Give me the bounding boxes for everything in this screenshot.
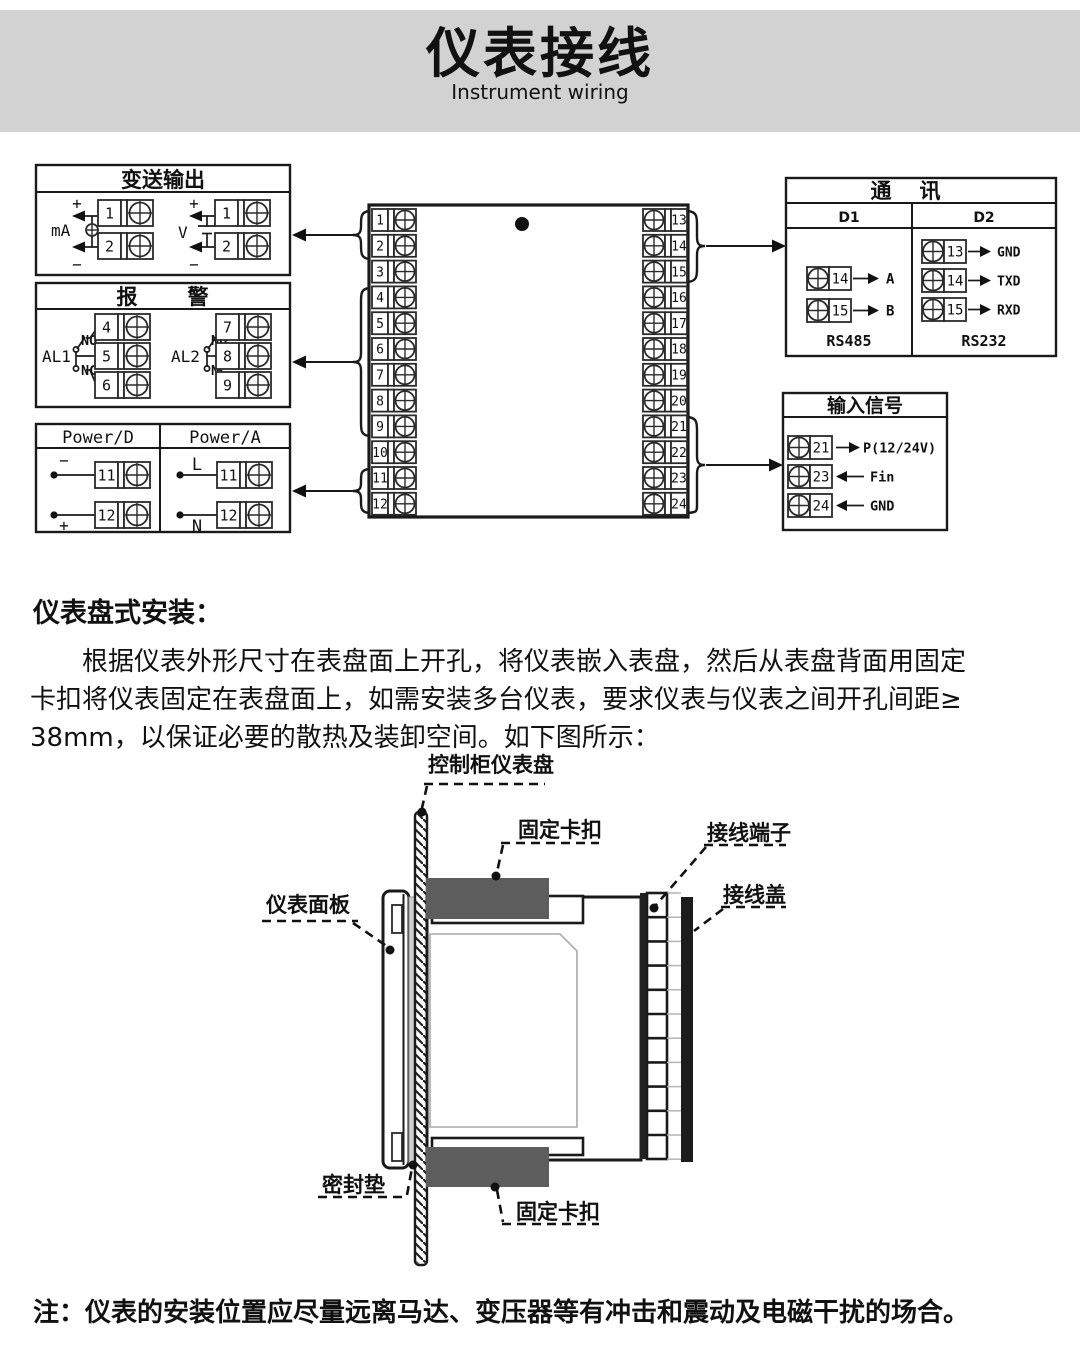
- terminal-number: 24: [671, 497, 687, 512]
- terminal-number: 2: [105, 237, 114, 255]
- gasket-label: 密封垫: [322, 1173, 385, 1197]
- terminal-number: 23: [671, 472, 687, 487]
- rs232-label: RS232: [961, 332, 1006, 350]
- terminal: 5: [372, 312, 416, 334]
- terminal: 4: [95, 314, 150, 340]
- terminal: 2: [372, 235, 416, 257]
- terminal-number: 2: [222, 237, 231, 255]
- terminal: 4: [372, 286, 416, 308]
- title-banner: 仪表接线 Instrument wiring: [0, 10, 1080, 132]
- front-panel-bezel: [383, 891, 409, 1168]
- terminal-number: 10: [372, 446, 388, 461]
- terminal-number: 4: [102, 318, 111, 336]
- page-subtitle: Instrument wiring: [0, 80, 1080, 104]
- terminal: 19: [643, 364, 687, 386]
- minus-sign: −: [189, 255, 199, 274]
- panel-mount-diagram: 控制柜仪表盘 固定卡扣 接线端子 接线盖 仪表面板 密封垫 固定卡扣: [0, 750, 1080, 1285]
- terminal: 18: [643, 338, 687, 360]
- wiring-cover-bar: [681, 897, 693, 1162]
- terminal: 8: [372, 390, 416, 412]
- v-label: V: [178, 223, 188, 242]
- al2-label: AL2: [171, 347, 200, 366]
- terminal: 14: [807, 267, 851, 290]
- alarm-title: 警: [187, 285, 209, 309]
- signal-label: RXD: [997, 304, 1021, 319]
- terminal: 6: [95, 372, 150, 398]
- terminal: 15: [643, 261, 687, 283]
- terminal-number: 8: [223, 347, 232, 365]
- terminal: 9: [216, 372, 271, 398]
- terminal: 11: [217, 462, 272, 488]
- cabinet-panel-label: 控制柜仪表盘: [428, 753, 554, 777]
- ma-label: mA: [51, 221, 71, 240]
- fixing-clip-bottom-label: 固定卡扣: [516, 1200, 600, 1224]
- terminal-number: 13: [671, 214, 687, 229]
- terminal-block-label: 接线端子: [707, 821, 791, 845]
- terminal: 20: [643, 390, 687, 412]
- terminal-number: 21: [671, 420, 687, 435]
- terminal: 9: [372, 415, 416, 437]
- terminal: 3: [372, 261, 416, 283]
- signal-label: A: [886, 272, 895, 288]
- terminal: 1: [215, 200, 270, 226]
- terminal-number: 15: [947, 303, 964, 319]
- terminal-number: 6: [376, 343, 384, 358]
- terminal-number: 2: [376, 239, 384, 254]
- comm-d1-header: D1: [838, 210, 859, 226]
- terminal-number: 8: [376, 394, 384, 409]
- minus-sign: −: [59, 451, 69, 470]
- page-title: 仪表接线: [0, 10, 1080, 82]
- signal-label: B: [886, 304, 894, 320]
- terminal: 24: [643, 493, 687, 515]
- terminal-number: 12: [219, 506, 237, 524]
- terminal-number: 1: [222, 204, 231, 222]
- terminal-number: 15: [832, 304, 849, 320]
- terminal: 10: [372, 441, 416, 463]
- terminal: 24: [788, 494, 832, 517]
- terminal-number: 9: [376, 420, 384, 435]
- signal-label: Fin: [870, 470, 894, 486]
- wiring-cover-label: 接线盖: [723, 883, 786, 907]
- terminal: 16: [643, 286, 687, 308]
- terminal-number: 18: [671, 343, 687, 358]
- minus-sign: −: [72, 255, 82, 274]
- live-label: L: [192, 455, 202, 475]
- plus-sign: +: [59, 516, 69, 535]
- terminal: 15: [922, 298, 966, 321]
- terminal-number: 7: [223, 318, 232, 336]
- terminal-number: 23: [813, 470, 830, 486]
- signal-label: GND: [870, 499, 894, 515]
- terminal: 15: [807, 299, 851, 322]
- front-panel-label: 仪表面板: [265, 893, 351, 917]
- terminal: 8: [216, 343, 271, 369]
- fixing-clip-top: [426, 878, 549, 919]
- power-a-title: Power/A: [189, 428, 261, 448]
- terminal-number: 15: [671, 265, 687, 280]
- terminal: 12: [217, 502, 272, 528]
- wiring-diagram: 变送输出 + − mA + − V 报 警 AL1: [0, 160, 1080, 550]
- signal-label: TXD: [997, 275, 1021, 290]
- terminal-number: 14: [947, 274, 964, 290]
- terminal: 23: [643, 467, 687, 489]
- installation-paragraph: 根据仪表外形尺寸在表盘面上开孔，将仪表嵌入表盘，然后从表盘背面用固定 卡扣将仪表…: [30, 643, 1060, 757]
- terminal: 1: [372, 209, 416, 231]
- paragraph-line: 根据仪表外形尺寸在表盘面上开孔，将仪表嵌入表盘，然后从表盘背面用固定: [30, 643, 1060, 681]
- al1-label: AL1: [42, 347, 71, 366]
- neutral-label: N: [192, 517, 202, 537]
- terminal: 13: [643, 209, 687, 231]
- signal-label: P(12/24V): [863, 441, 936, 457]
- terminal-number: 13: [947, 245, 964, 261]
- paragraph-line: 卡扣将仪表固定在表盘面上，如需安装多台仪表，要求仪表与仪表之间开孔间距≥: [30, 681, 1060, 719]
- instrument-window: [430, 934, 577, 1127]
- terminal-number: 7: [376, 368, 384, 383]
- plus-sign: +: [189, 194, 199, 213]
- terminal-number: 5: [102, 347, 111, 365]
- terminal-number: 24: [813, 499, 830, 515]
- terminal: 21: [788, 436, 832, 459]
- alarm-title: 报: [117, 285, 138, 309]
- terminal-number: 11: [97, 466, 115, 484]
- terminal-number: 6: [102, 376, 111, 394]
- terminal-number: 14: [671, 239, 687, 254]
- terminal: 6: [372, 338, 416, 360]
- transmission-output-title: 变送输出: [121, 168, 205, 192]
- manual-page: { "banner": {"title": "仪表接线", "subtitle"…: [0, 0, 1080, 1346]
- fixing-clip-bottom: [426, 1147, 549, 1187]
- terminal-number: 22: [671, 446, 687, 461]
- terminal-number: 9: [223, 376, 232, 394]
- terminal: 11: [95, 462, 150, 488]
- cabinet-panel-bar: [415, 812, 427, 1265]
- terminal-number: 4: [376, 291, 384, 306]
- terminal-number: 1: [376, 214, 384, 229]
- generated-terminals: 1212456789111211121132143154165176187198…: [95, 200, 1021, 528]
- terminal-number: 12: [372, 497, 388, 512]
- terminal-number: 11: [219, 466, 237, 484]
- comm-title: 讯: [920, 179, 941, 203]
- mounting-hole: [515, 217, 529, 231]
- terminal-number: 12: [97, 506, 115, 524]
- terminal-number: 21: [813, 441, 830, 457]
- terminal: 17: [643, 312, 687, 334]
- terminal-number: 17: [671, 317, 687, 332]
- terminal: 12: [372, 493, 416, 515]
- terminal: 5: [95, 343, 150, 369]
- comm-d2-header: D2: [973, 210, 994, 226]
- terminal-strip: [640, 893, 681, 1159]
- terminal-number: 19: [671, 368, 687, 383]
- terminal: 12: [95, 502, 150, 528]
- terminal-number: 16: [671, 291, 687, 306]
- terminal: 11: [372, 467, 416, 489]
- plus-sign: +: [72, 194, 82, 213]
- terminal-number: 11: [372, 472, 388, 487]
- terminal: 13: [922, 240, 966, 263]
- terminal: 2: [215, 233, 270, 259]
- signal-label: GND: [997, 246, 1021, 261]
- terminal-block: [292, 205, 786, 517]
- terminal: 23: [788, 465, 832, 488]
- terminal-number: 3: [376, 265, 384, 280]
- terminal: 14: [922, 269, 966, 292]
- terminal-number: 1: [105, 204, 114, 222]
- terminal-number: 20: [671, 394, 687, 409]
- terminal: 1: [98, 200, 153, 226]
- terminal: 22: [643, 441, 687, 463]
- terminal: 7: [216, 314, 271, 340]
- input-signal-title: 输入信号: [827, 394, 903, 417]
- section-heading: 仪表盘式安装：: [33, 591, 222, 630]
- terminal-number: 5: [376, 317, 384, 332]
- terminal: 2: [98, 233, 153, 259]
- rs485-label: RS485: [826, 332, 871, 350]
- terminal-number: 14: [832, 272, 849, 288]
- footer-note: 注：仪表的安装位置应尽量远离马达、变压器等有冲击和震动及电磁干扰的场合。: [33, 1292, 969, 1329]
- power-d-title: Power/D: [62, 428, 134, 448]
- fixing-clip-top-label: 固定卡扣: [518, 818, 602, 842]
- terminal: 21: [643, 415, 687, 437]
- terminal: 14: [643, 235, 687, 257]
- terminal: 7: [372, 364, 416, 386]
- comm-title: 通: [871, 179, 892, 203]
